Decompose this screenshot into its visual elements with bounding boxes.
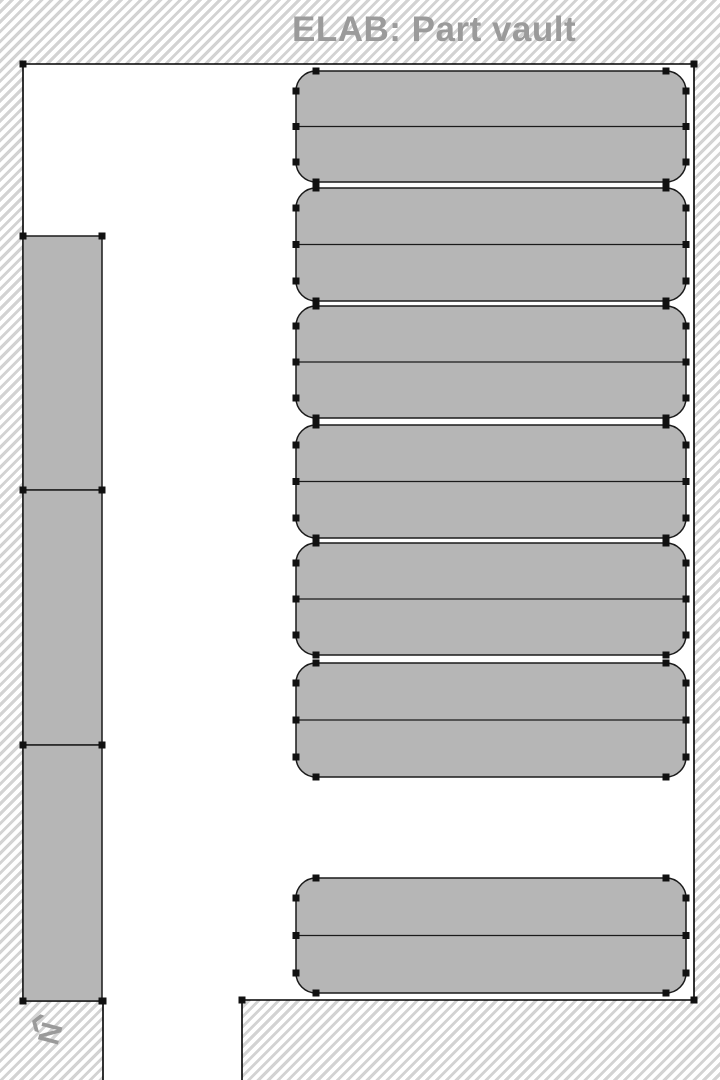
vertex-marker xyxy=(20,233,27,240)
vertex-marker xyxy=(293,754,300,761)
vertex-marker xyxy=(663,185,670,192)
vertex-marker xyxy=(20,742,27,749)
vertex-marker xyxy=(293,632,300,639)
vertex-marker xyxy=(683,359,690,366)
vertex-marker xyxy=(293,241,300,248)
vertex-marker xyxy=(293,159,300,166)
vertex-marker xyxy=(293,323,300,330)
vertex-marker xyxy=(663,540,670,547)
vertex-marker xyxy=(293,596,300,603)
vertex-marker xyxy=(313,990,320,997)
vertex-marker xyxy=(293,560,300,567)
vertex-marker xyxy=(293,442,300,449)
vertex-marker xyxy=(313,660,320,667)
vertex-marker xyxy=(239,997,246,1004)
vertex-marker xyxy=(683,395,690,402)
vertex-marker xyxy=(663,990,670,997)
vertex-marker xyxy=(99,742,106,749)
vertex-marker xyxy=(683,323,690,330)
vertex-marker xyxy=(663,68,670,75)
vertex-marker xyxy=(663,422,670,429)
vertex-marker xyxy=(683,560,690,567)
vertex-marker xyxy=(313,652,320,659)
vertex-marker xyxy=(293,359,300,366)
vertex-marker xyxy=(663,774,670,781)
vertex-marker xyxy=(313,303,320,310)
vertex-marker xyxy=(683,241,690,248)
vertex-marker xyxy=(313,774,320,781)
vertex-marker xyxy=(313,415,320,422)
vertex-marker xyxy=(313,875,320,882)
vertex-marker xyxy=(313,68,320,75)
vertex-marker xyxy=(683,680,690,687)
storage-rack[interactable] xyxy=(23,236,102,490)
vertex-marker xyxy=(313,185,320,192)
storage-rack[interactable] xyxy=(23,490,102,745)
vertex-marker xyxy=(20,487,27,494)
vertex-marker xyxy=(99,487,106,494)
vertex-marker xyxy=(313,422,320,429)
vertex-marker xyxy=(100,998,107,1005)
vertex-marker xyxy=(683,278,690,285)
vertex-marker xyxy=(293,278,300,285)
vertex-marker xyxy=(683,632,690,639)
vertex-marker xyxy=(293,205,300,212)
compass-letter: N xyxy=(30,1018,68,1048)
vertex-marker xyxy=(293,478,300,485)
vertex-marker xyxy=(99,233,106,240)
vertex-marker xyxy=(663,652,670,659)
vertex-marker xyxy=(293,88,300,95)
vertex-marker xyxy=(293,717,300,724)
vertex-marker xyxy=(683,970,690,977)
vertex-marker xyxy=(293,515,300,522)
vertex-marker xyxy=(683,596,690,603)
vertex-marker xyxy=(683,478,690,485)
vertex-marker xyxy=(683,932,690,939)
vertex-marker xyxy=(293,123,300,130)
vertex-marker xyxy=(663,179,670,186)
vertex-marker xyxy=(683,159,690,166)
vertex-marker xyxy=(20,998,27,1005)
vertex-marker xyxy=(683,515,690,522)
vertex-marker xyxy=(293,680,300,687)
vertex-marker xyxy=(293,970,300,977)
storage-rack[interactable] xyxy=(23,745,102,1001)
vertex-marker xyxy=(683,205,690,212)
vertex-marker xyxy=(683,895,690,902)
vertex-marker xyxy=(683,88,690,95)
page-title: ELAB: Part vault xyxy=(292,10,576,50)
vertex-marker xyxy=(663,875,670,882)
floor-plan-canvas: ELAB: Part vault ❮ N xyxy=(0,0,720,1080)
vertex-marker xyxy=(20,61,27,68)
floor-plan-svg xyxy=(0,0,720,1080)
vertex-marker xyxy=(293,932,300,939)
vertex-marker xyxy=(663,660,670,667)
vertex-marker xyxy=(313,179,320,186)
compass-north: ❮ N xyxy=(22,1010,78,1062)
vertex-marker xyxy=(293,895,300,902)
vertex-marker xyxy=(691,61,698,68)
vertex-marker xyxy=(683,442,690,449)
vertex-marker xyxy=(293,395,300,402)
vertex-marker xyxy=(683,754,690,761)
vertex-marker xyxy=(663,303,670,310)
vertex-marker xyxy=(683,717,690,724)
vertex-marker xyxy=(313,540,320,547)
vertex-marker xyxy=(691,997,698,1004)
vertex-marker xyxy=(663,415,670,422)
vertex-marker xyxy=(683,123,690,130)
